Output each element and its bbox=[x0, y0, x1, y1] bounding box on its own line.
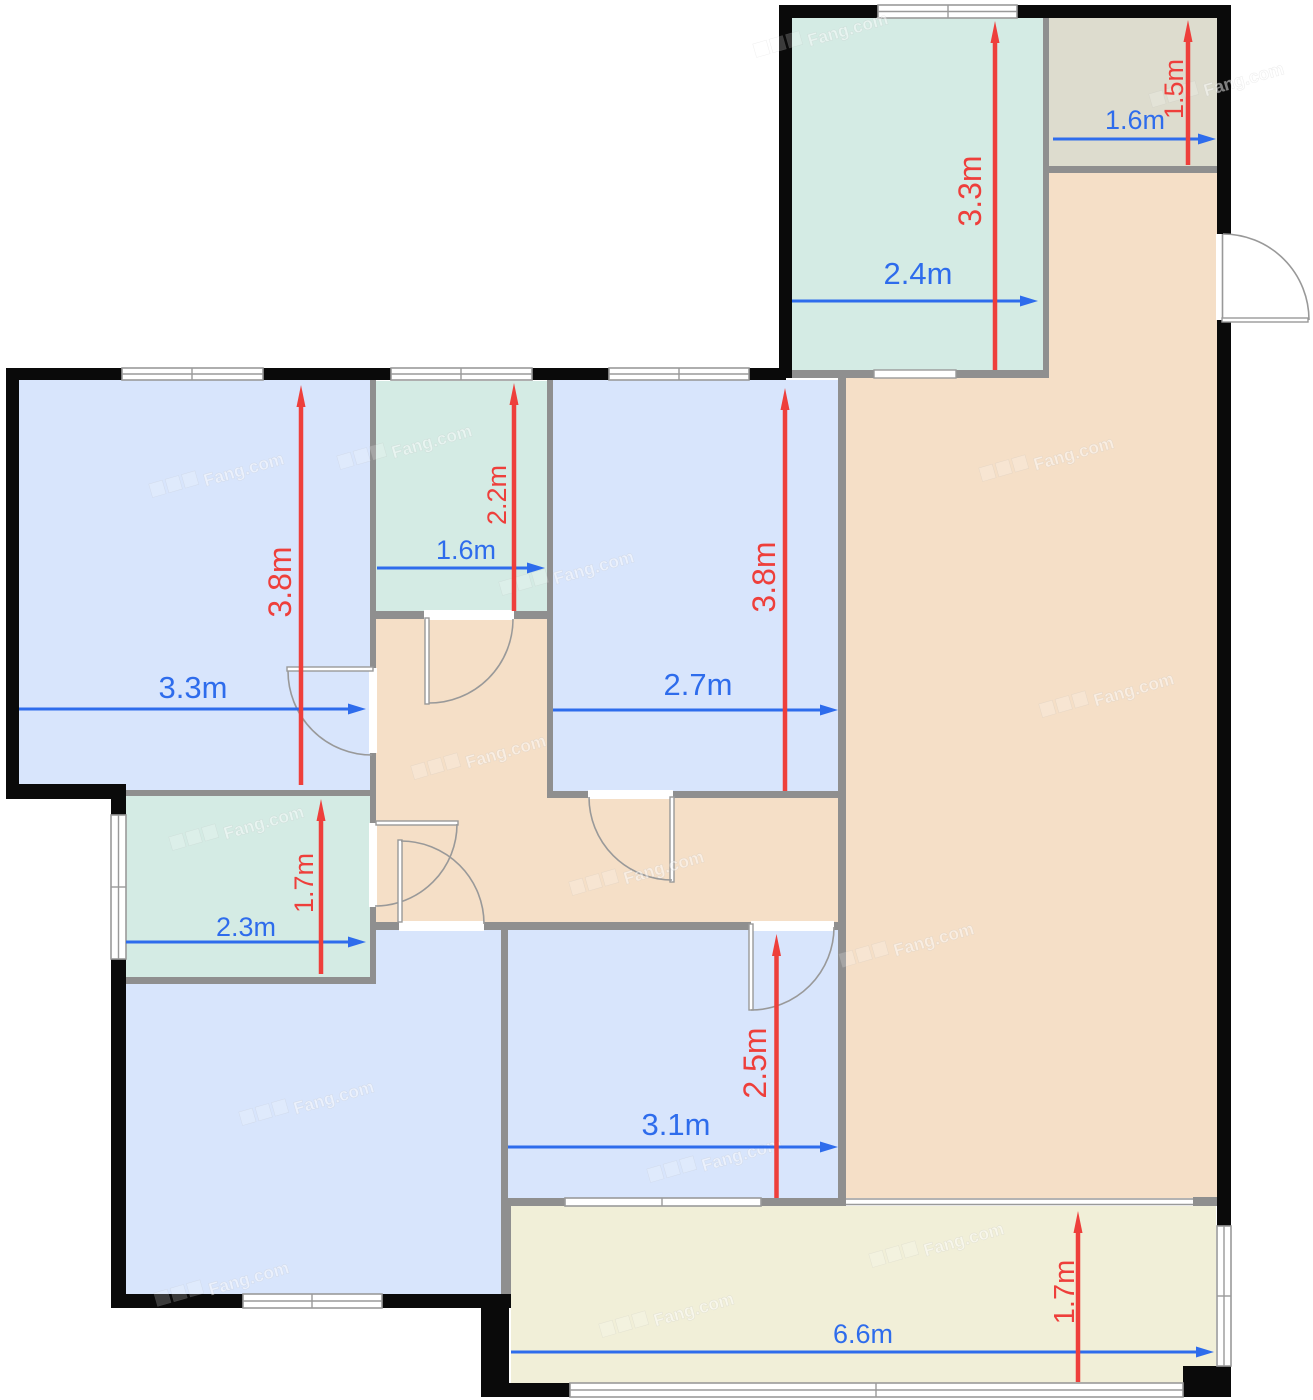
svg-text:2.4m: 2.4m bbox=[884, 256, 953, 291]
svg-text:1.6m: 1.6m bbox=[1105, 105, 1165, 135]
svg-text:6.6m: 6.6m bbox=[833, 1319, 893, 1349]
svg-text:2.5m: 2.5m bbox=[737, 1027, 773, 1098]
svg-text:2.7m: 2.7m bbox=[664, 667, 733, 702]
svg-text:1.7m: 1.7m bbox=[289, 853, 319, 913]
svg-text:3.8m: 3.8m bbox=[262, 546, 298, 617]
svg-text:3.1m: 3.1m bbox=[642, 1107, 711, 1142]
svg-text:3.8m: 3.8m bbox=[746, 541, 782, 612]
svg-text:3.3m: 3.3m bbox=[952, 155, 988, 226]
svg-text:1.6m: 1.6m bbox=[436, 535, 496, 565]
svg-text:2.3m: 2.3m bbox=[216, 912, 276, 942]
svg-text:1.7m: 1.7m bbox=[1049, 1260, 1081, 1324]
svg-text:1.5m: 1.5m bbox=[1159, 59, 1189, 119]
svg-text:2.2m: 2.2m bbox=[482, 465, 512, 525]
svg-text:3.3m: 3.3m bbox=[159, 670, 228, 705]
